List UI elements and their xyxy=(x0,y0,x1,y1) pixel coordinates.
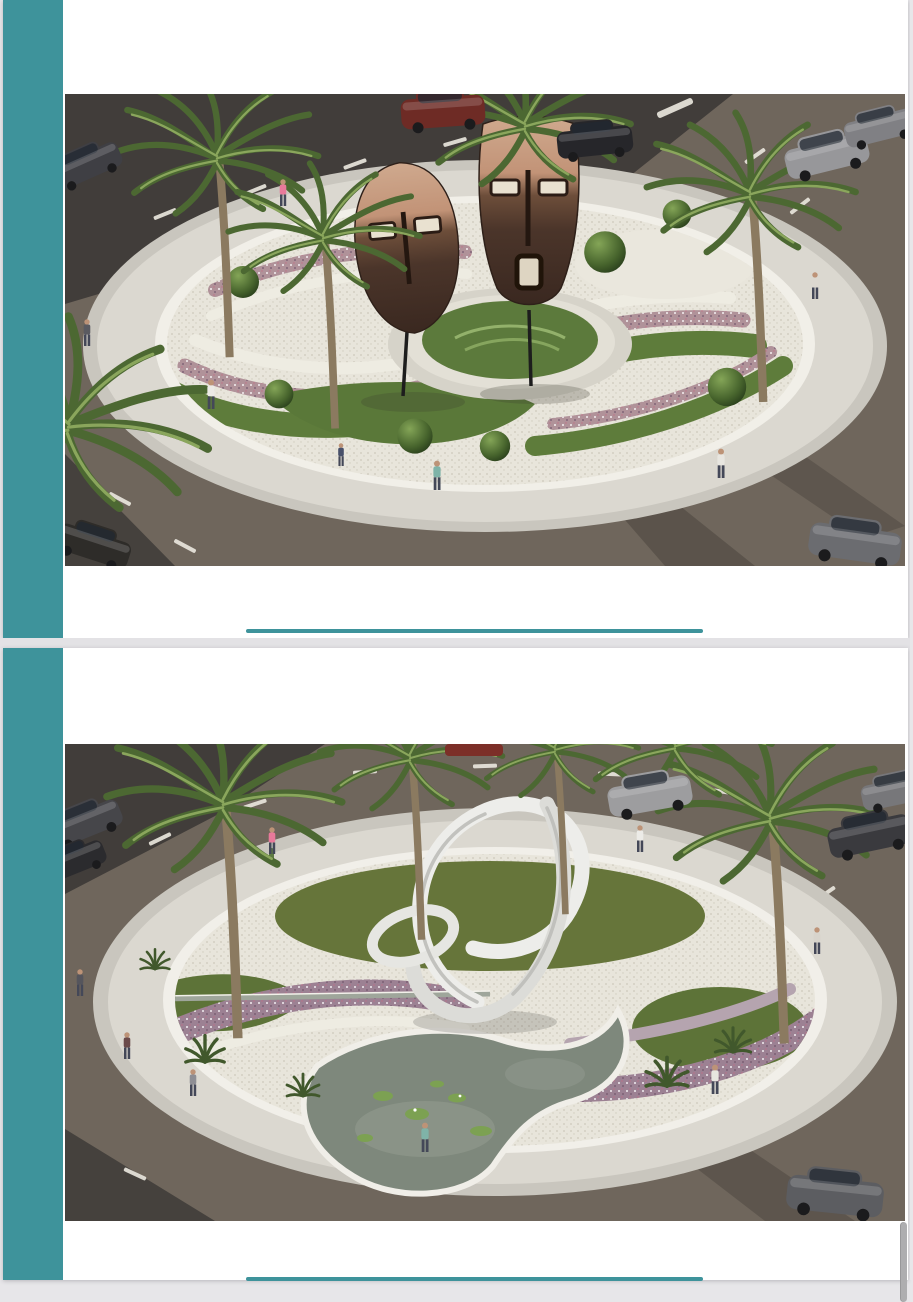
accent-sidebar-bar xyxy=(3,0,63,638)
accent-divider-line xyxy=(246,1277,703,1281)
page-1 xyxy=(3,0,908,638)
page-2 xyxy=(3,648,908,1280)
figure-masks-roundabout xyxy=(65,94,905,566)
accent-divider-line xyxy=(246,629,703,633)
accent-sidebar-bar xyxy=(3,648,63,1280)
scrollbar-thumb[interactable] xyxy=(900,1222,907,1302)
ribbon-roundabout-render xyxy=(65,744,905,1221)
figure-ribbon-roundabout xyxy=(65,744,905,1221)
masks-roundabout-render xyxy=(65,94,905,566)
page-separator xyxy=(0,638,913,648)
